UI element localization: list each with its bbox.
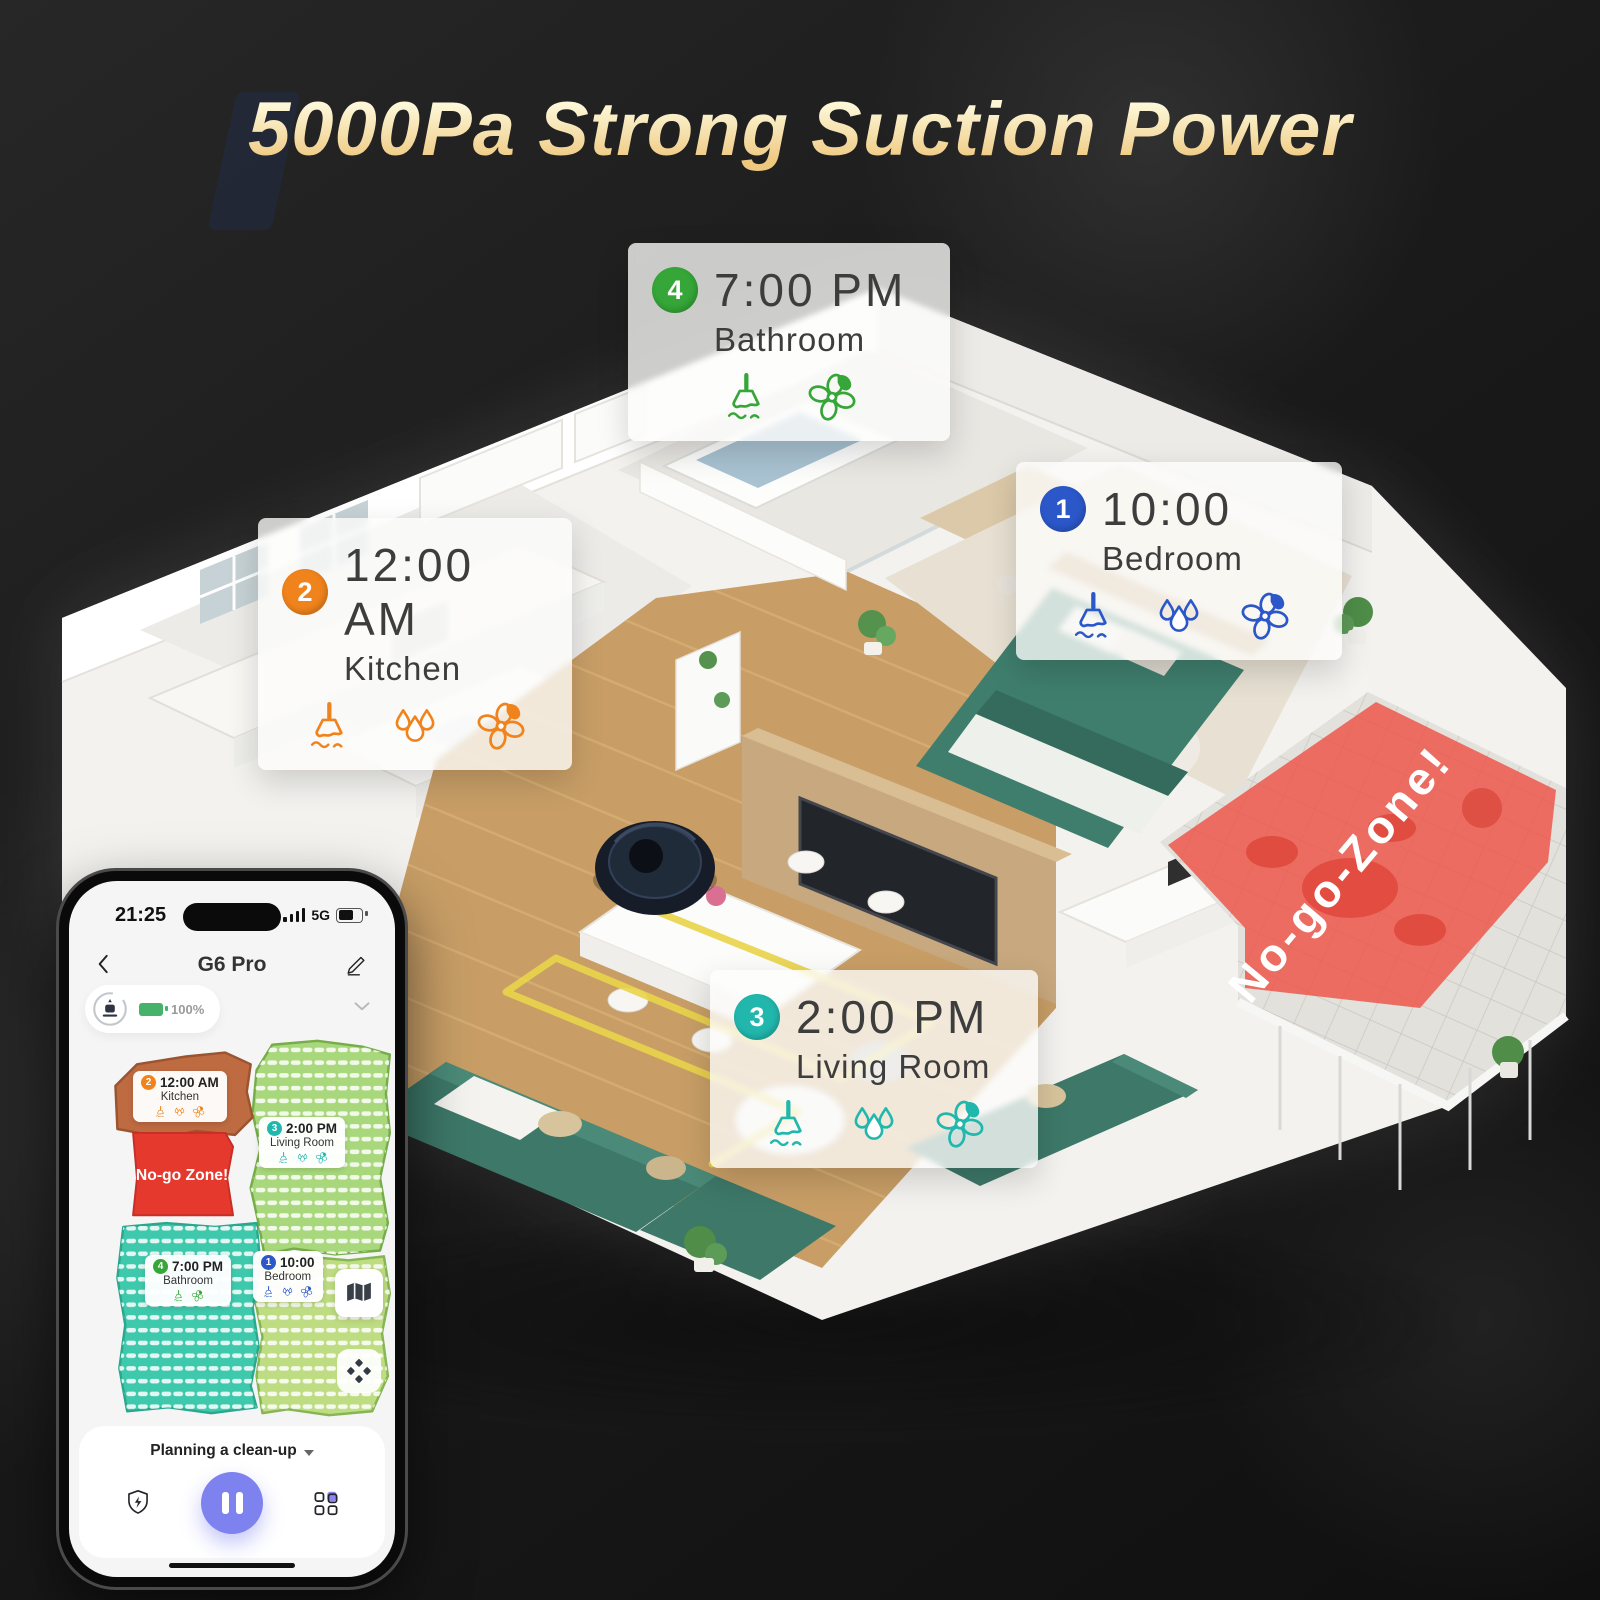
robot-status-pill: 100% — [85, 985, 220, 1033]
water-drops-icon — [173, 1105, 186, 1118]
folded-map-icon — [344, 1278, 374, 1308]
app-screen: 21:25 5G G6 Pro 100% — [69, 881, 395, 1577]
order-badge: 4 — [153, 1259, 168, 1274]
broom-icon — [1066, 588, 1120, 642]
schedule-card-bedroom: 1 10:00 Bedroom — [1016, 462, 1342, 660]
cleaning-map[interactable]: No-go Zone! 2 12:00 AM Kitchen — [75, 1031, 395, 1423]
schedule-time: 10:00 — [280, 1255, 315, 1270]
schedule-time: 2:00 PM — [286, 1121, 337, 1136]
room-name: Living Room — [796, 1048, 1014, 1086]
water-drops-icon — [847, 1096, 901, 1150]
broom-icon — [719, 369, 773, 423]
fan-icon — [805, 369, 859, 423]
fan-icon — [474, 698, 528, 752]
battery-level-ic`on — [139, 1003, 163, 1016]
battery-icon — [336, 908, 363, 923]
map-label-bedroom: 1 10:00 Bedroom — [253, 1251, 323, 1302]
fan-icon — [300, 1285, 313, 1298]
schedule-time: 10:00 — [1102, 482, 1232, 536]
water-drops-icon — [388, 698, 442, 752]
order-badge: 1 — [261, 1255, 276, 1270]
broom-icon — [302, 698, 356, 752]
map-label-living-room: 3 2:00 PM Living Room — [259, 1117, 345, 1168]
schedule-card-living-room: 3 2:00 PM Living Room — [710, 970, 1038, 1168]
order-badge: 3 — [267, 1121, 282, 1136]
room-name: Bedroom — [261, 1271, 315, 1283]
home-indicator[interactable] — [169, 1563, 295, 1568]
clean-modes-button[interactable] — [311, 1488, 341, 1518]
broom-icon — [154, 1105, 167, 1118]
battery-percent: 100% — [171, 1002, 204, 1017]
order-badge: 3 — [734, 994, 780, 1040]
broom-icon — [277, 1151, 290, 1164]
water-drops-icon — [1152, 588, 1206, 642]
water-drops-icon — [296, 1151, 309, 1164]
map-no-go-label: No-go Zone! — [136, 1167, 228, 1184]
schedule-time: 7:00 PM — [714, 263, 906, 317]
map-label-bathroom: 4 7:00 PM Bathroom — [145, 1255, 231, 1306]
schedule-time: 2:00 PM — [796, 990, 988, 1044]
map-label-kitchen: 2 12:00 AM Kitchen — [133, 1071, 227, 1122]
marketing-image: 5000Pa Strong Suction Power — [0, 0, 1600, 1600]
room-name: Kitchen — [141, 1091, 219, 1103]
broom-icon — [761, 1096, 815, 1150]
schedule-time: 12:00 AM — [344, 538, 548, 646]
fan-icon — [191, 1289, 204, 1302]
fan-icon — [192, 1105, 205, 1118]
room-name: Kitchen — [344, 650, 548, 688]
room-name: Bathroom — [714, 321, 926, 359]
caret-down-icon — [304, 1450, 314, 1456]
status-time: 21:25 — [115, 904, 166, 927]
fan-icon — [1238, 588, 1292, 642]
control-panel: Planning a clean-up — [79, 1426, 385, 1558]
collapse-chevron-icon[interactable] — [349, 993, 375, 1019]
order-badge: 2 — [141, 1075, 156, 1090]
status-bar: 21:25 5G — [69, 901, 395, 931]
network-label: 5G — [311, 907, 330, 923]
room-name: Bathroom — [153, 1275, 223, 1287]
app-nav-bar: G6 Pro — [69, 945, 395, 985]
schedule-card-bathroom: 4 7:00 PM Bathroom — [628, 243, 950, 441]
robot-avatar-icon — [89, 988, 131, 1030]
shield-icon — [123, 1488, 153, 1518]
split-rooms-button[interactable] — [337, 1349, 381, 1393]
map-view-button[interactable] — [335, 1269, 383, 1317]
schedule-time: 12:00 AM — [160, 1075, 219, 1090]
schedule-time: 7:00 PM — [172, 1259, 223, 1274]
mode-dropdown[interactable]: Planning a clean-up — [79, 1442, 385, 1460]
dynamic-island — [183, 903, 281, 931]
signal-icon — [283, 908, 305, 922]
order-badge: 1 — [1040, 486, 1086, 532]
pause-icon — [222, 1492, 229, 1514]
shield-button[interactable] — [123, 1488, 153, 1518]
fan-icon — [933, 1096, 987, 1150]
room-name: Living Room — [267, 1137, 337, 1149]
fan-icon — [315, 1151, 328, 1164]
four-diamonds-icon — [346, 1358, 372, 1384]
order-badge: 4 — [652, 267, 698, 313]
edit-button[interactable] — [343, 951, 369, 977]
broom-icon — [262, 1285, 275, 1298]
pause-button[interactable] — [201, 1472, 263, 1534]
schedule-card-kitchen: 2 12:00 AM Kitchen — [258, 518, 572, 770]
broom-icon — [172, 1289, 185, 1302]
water-drops-icon — [281, 1285, 294, 1298]
grid-icon — [311, 1488, 341, 1518]
mode-label: Planning a clean-up — [150, 1442, 296, 1460]
smartphone-mockup: 21:25 5G G6 Pro 100% — [56, 868, 408, 1590]
room-name: Bedroom — [1102, 540, 1318, 578]
order-badge: 2 — [282, 569, 328, 615]
